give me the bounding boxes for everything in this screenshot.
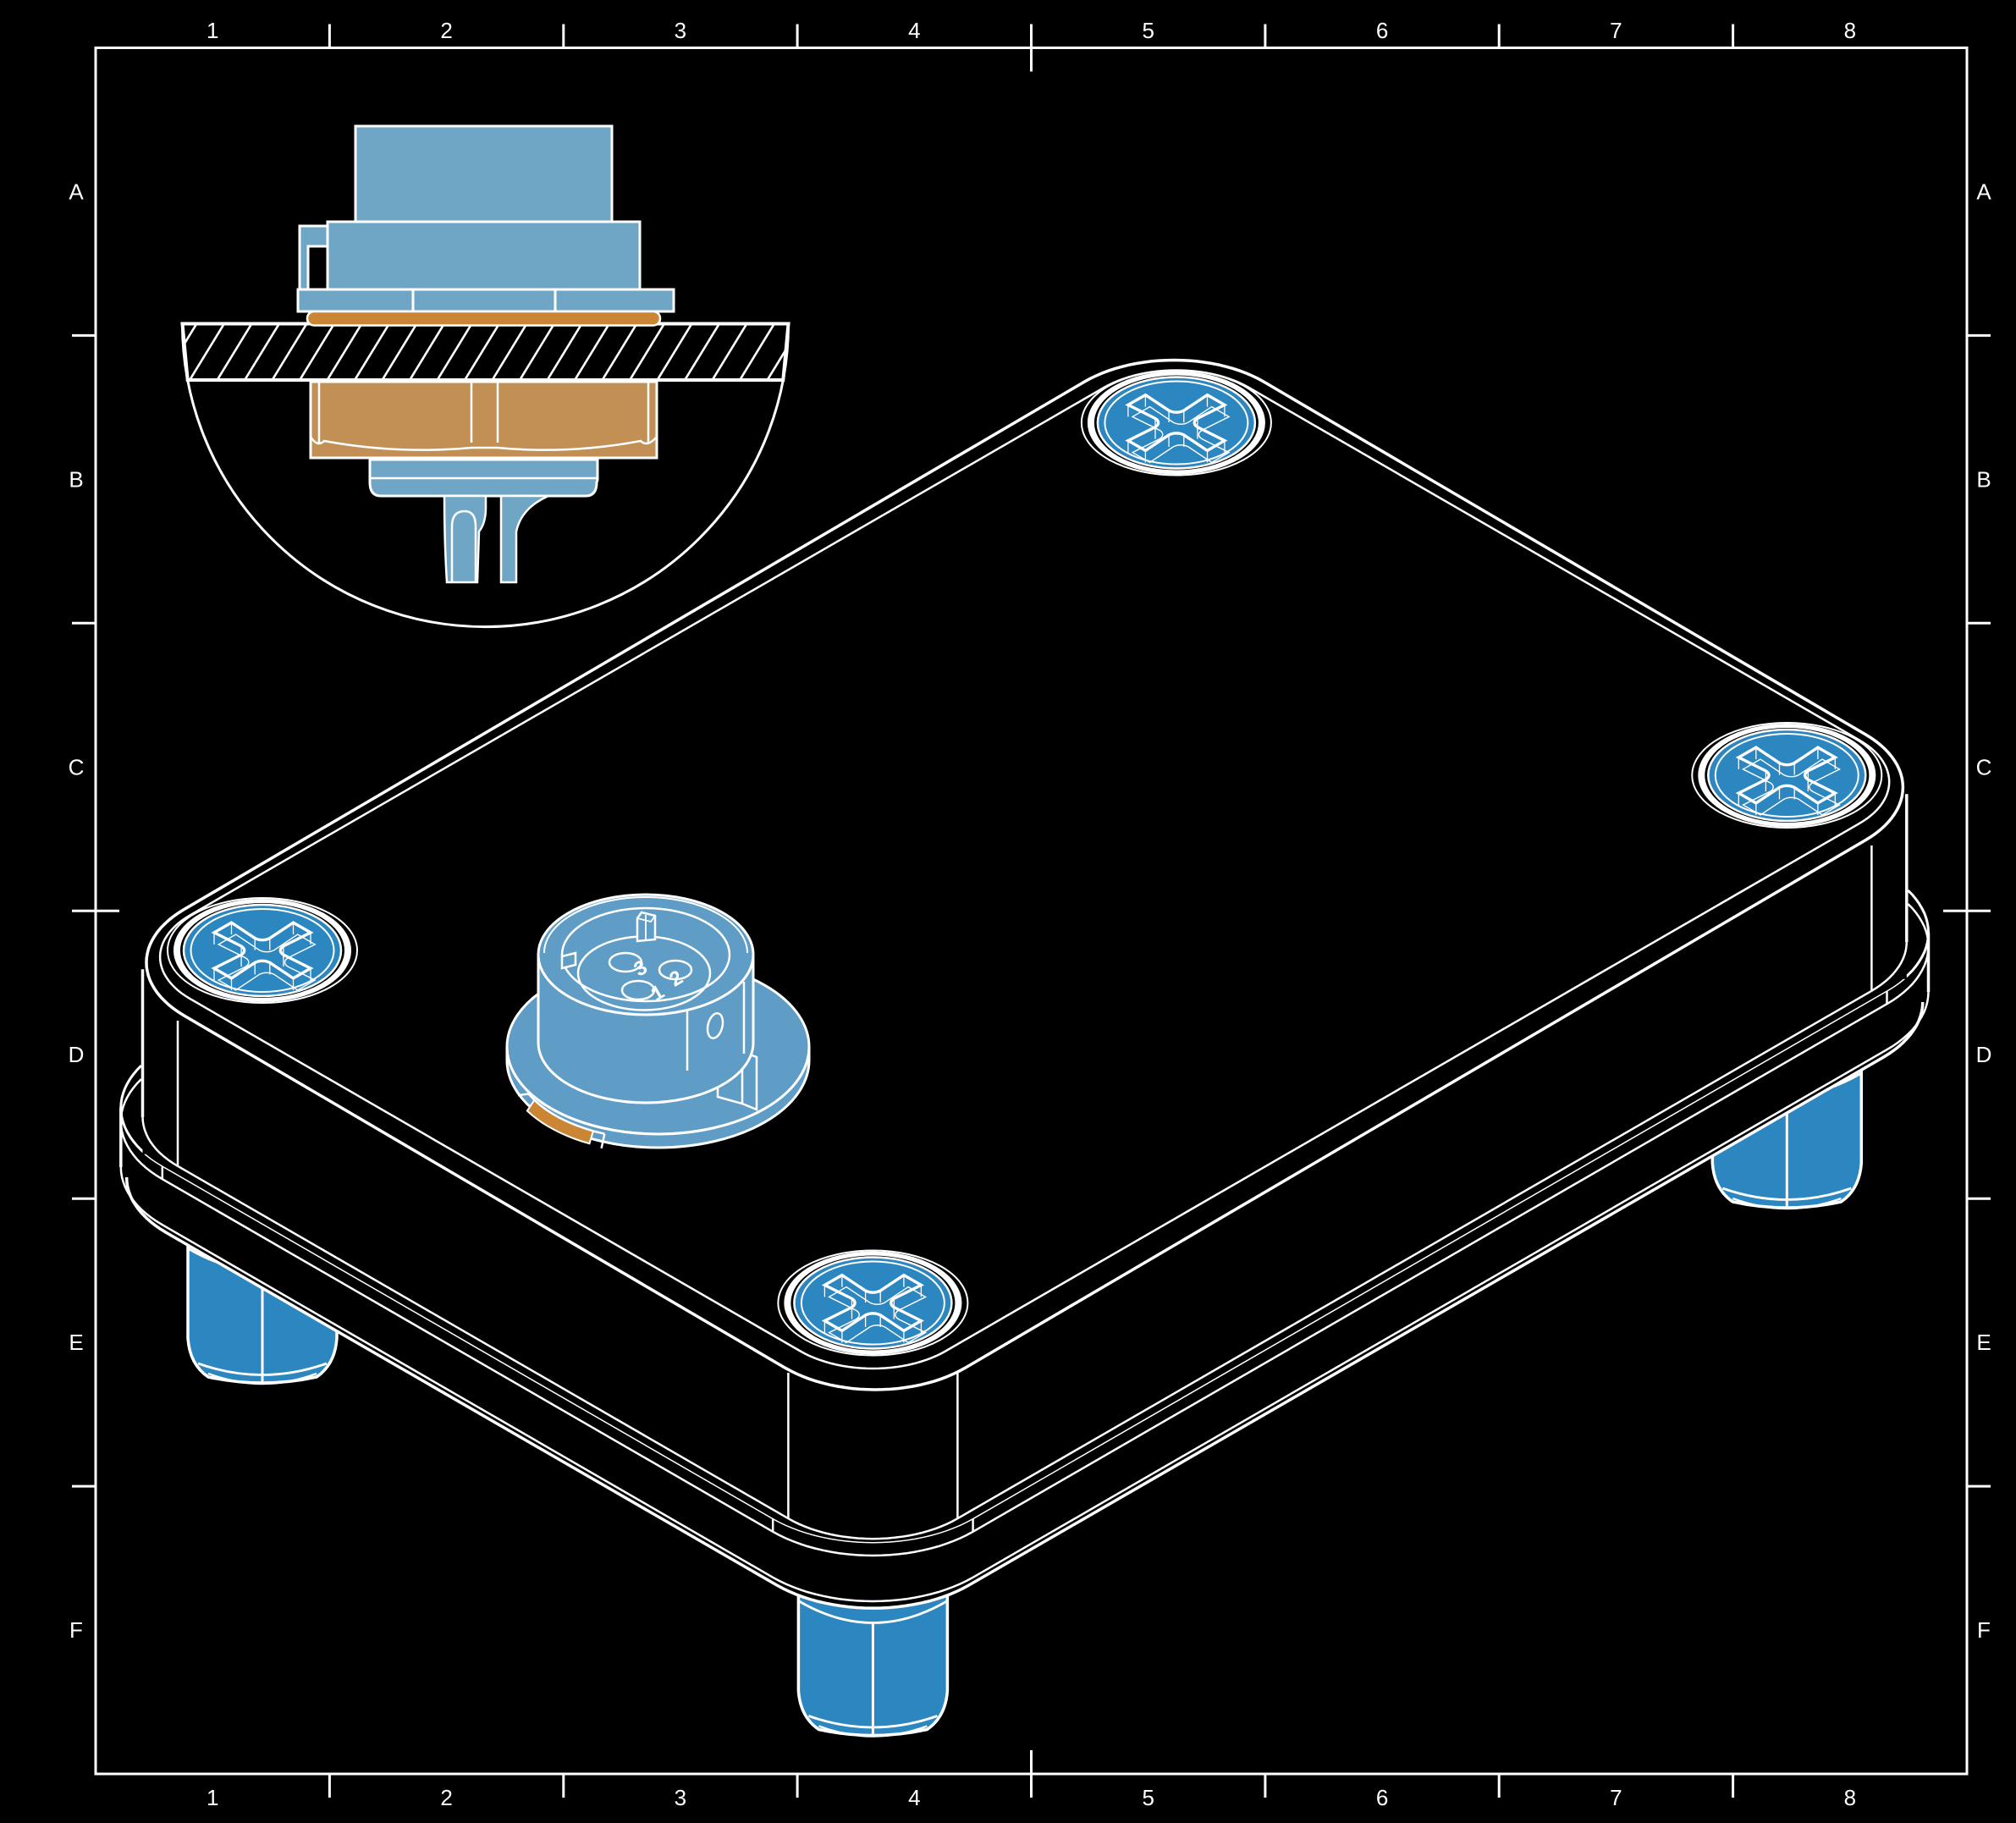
svg-text:8: 8 xyxy=(1844,18,1856,43)
svg-text:C: C xyxy=(69,754,85,779)
svg-text:F: F xyxy=(1977,1617,1991,1643)
svg-text:7: 7 xyxy=(1610,18,1622,43)
svg-text:8: 8 xyxy=(1844,1785,1856,1810)
svg-text:A: A xyxy=(1976,179,1991,205)
svg-text:A: A xyxy=(69,179,84,205)
svg-text:3: 3 xyxy=(675,1785,686,1810)
svg-text:6: 6 xyxy=(1376,1785,1388,1810)
svg-text:D: D xyxy=(1976,1042,1992,1067)
svg-text:4: 4 xyxy=(908,1785,920,1810)
svg-text:7: 7 xyxy=(1610,1785,1622,1810)
svg-text:F: F xyxy=(69,1617,83,1643)
svg-text:2: 2 xyxy=(440,1785,452,1810)
svg-text:2: 2 xyxy=(440,18,452,43)
svg-text:E: E xyxy=(1976,1330,1991,1355)
svg-text:B: B xyxy=(69,466,83,492)
svg-text:C: C xyxy=(1976,754,1992,779)
svg-text:6: 6 xyxy=(1376,18,1388,43)
svg-text:E: E xyxy=(69,1330,83,1355)
svg-text:3: 3 xyxy=(675,18,686,43)
svg-text:5: 5 xyxy=(1142,1785,1154,1810)
svg-text:1: 1 xyxy=(207,18,218,43)
svg-text:1: 1 xyxy=(207,1785,218,1810)
svg-text:5: 5 xyxy=(1142,18,1154,43)
svg-text:D: D xyxy=(69,1042,85,1067)
svg-text:4: 4 xyxy=(908,18,920,43)
svg-text:B: B xyxy=(1976,466,1991,492)
